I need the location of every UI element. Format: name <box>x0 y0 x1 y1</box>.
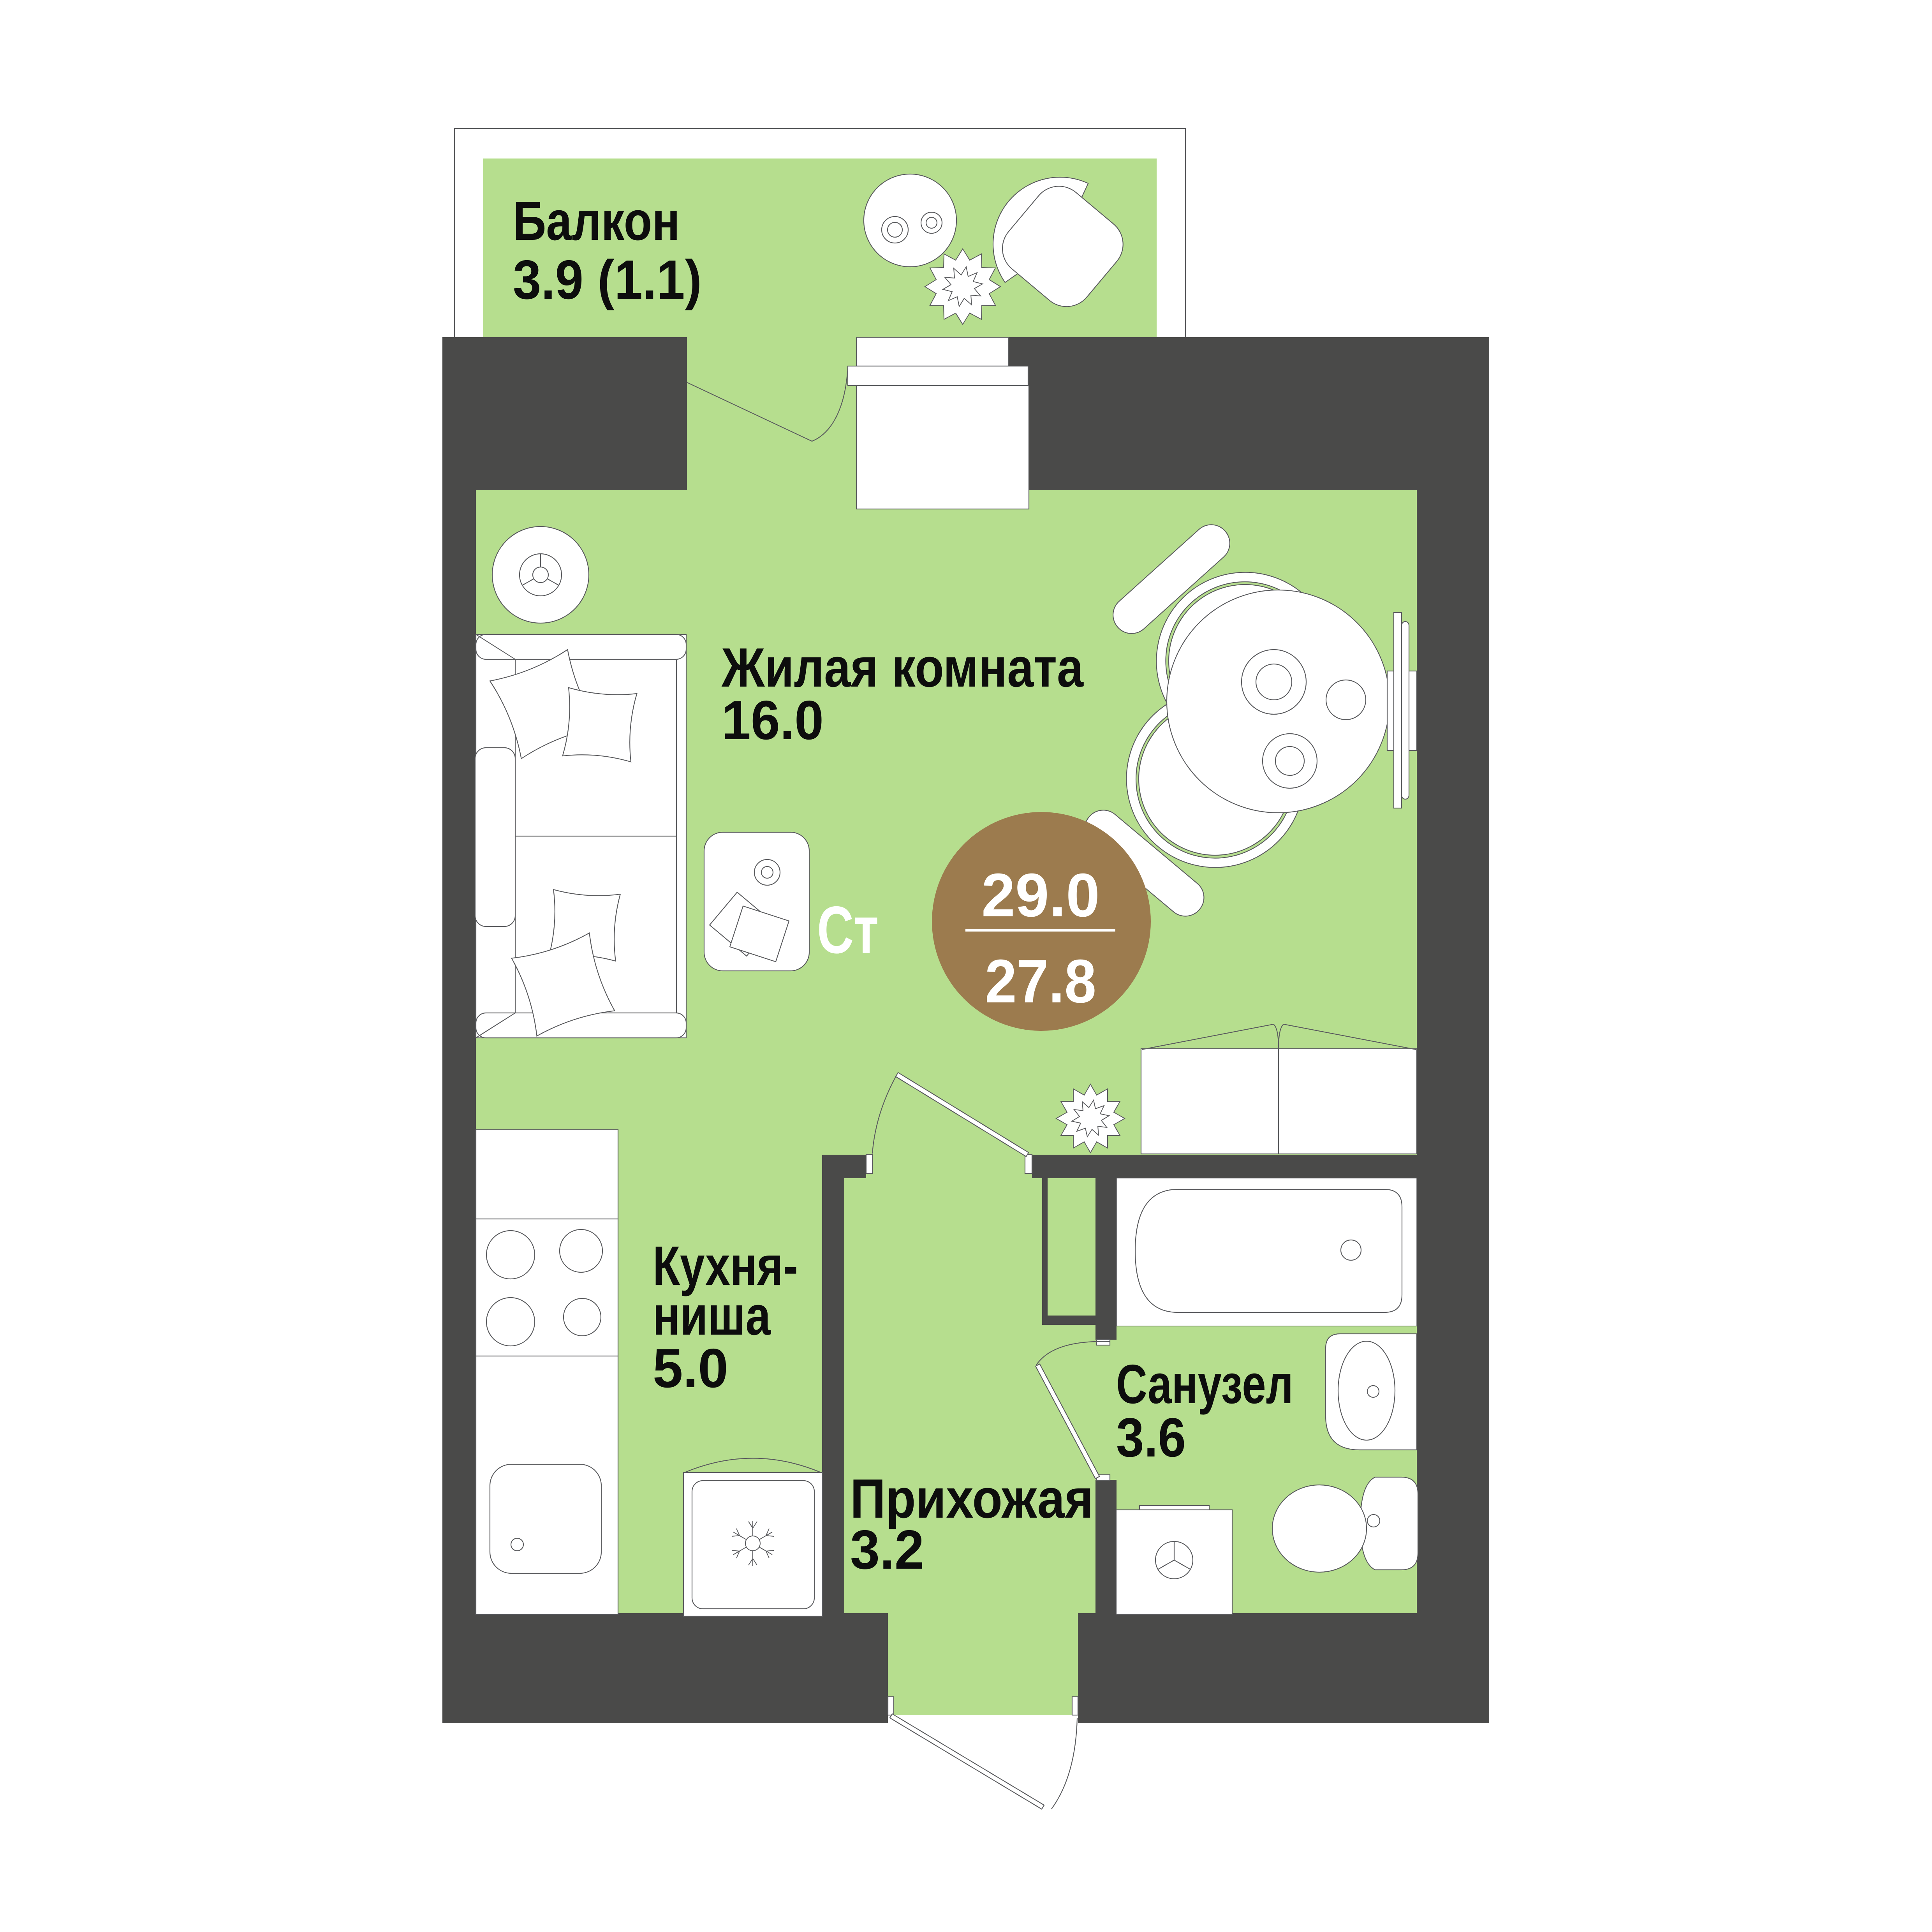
svg-text:5.0: 5.0 <box>653 1337 728 1399</box>
svg-text:16.0: 16.0 <box>722 689 824 751</box>
svg-text:Санузел: Санузел <box>1116 1353 1293 1415</box>
svg-text:3.2: 3.2 <box>850 1519 924 1581</box>
svg-text:27.8: 27.8 <box>985 947 1096 1016</box>
svg-text:3.6: 3.6 <box>1116 1407 1186 1469</box>
svg-text:29.0: 29.0 <box>981 861 1100 930</box>
svg-text:Балкон: Балкон <box>513 190 680 252</box>
svg-text:Ст: Ст <box>817 893 879 967</box>
svg-text:3.9 (1.1): 3.9 (1.1) <box>513 249 702 311</box>
